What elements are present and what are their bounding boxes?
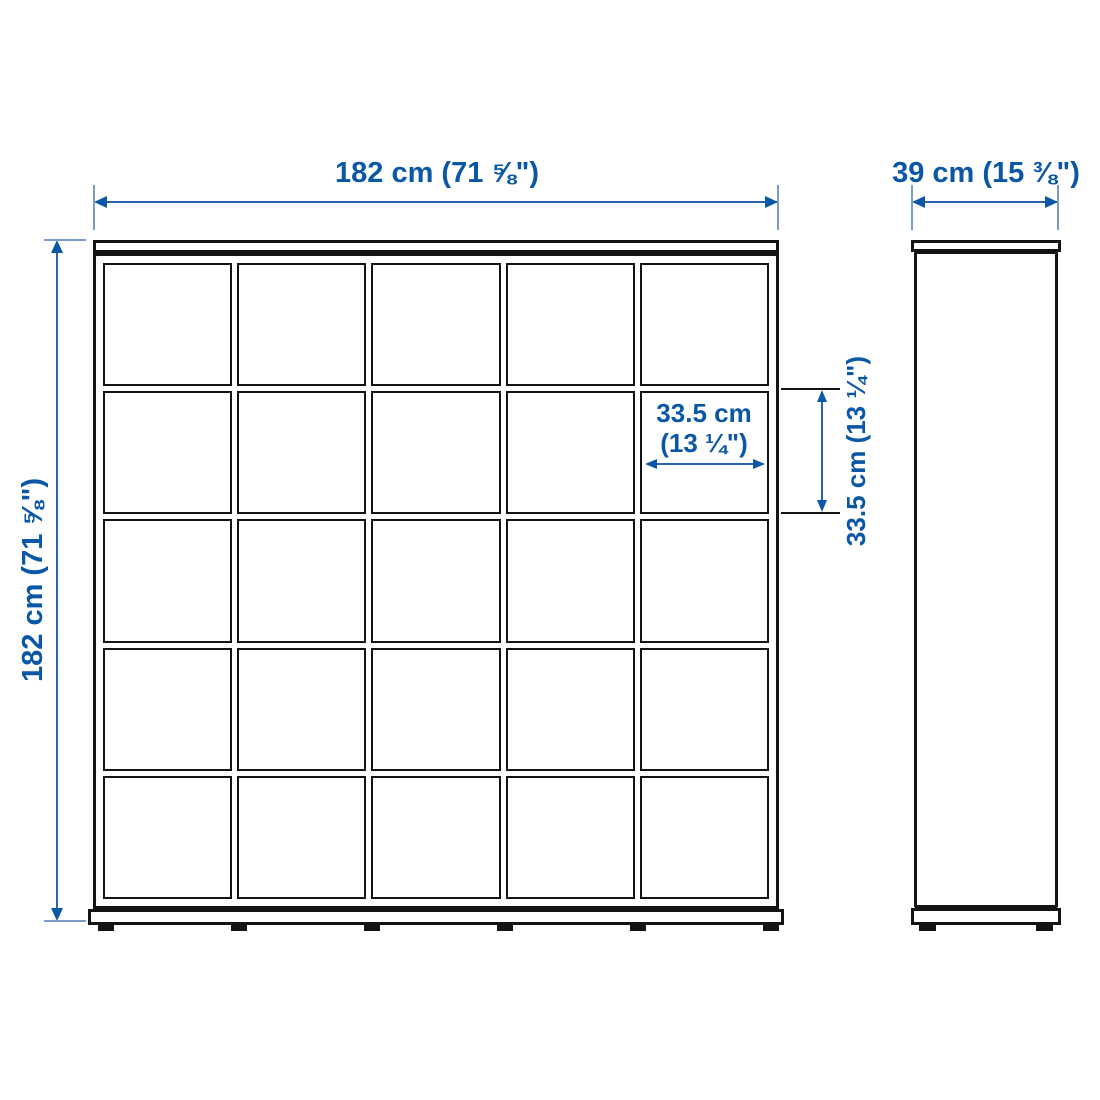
cube-cell [640, 519, 769, 642]
cube-cell [371, 648, 500, 771]
extension-tick [777, 185, 779, 230]
cube-cell [640, 648, 769, 771]
cell-height-label: 33.5 cm (13 ¼") [841, 251, 871, 651]
cube-cell [237, 391, 366, 514]
arrowhead-up-icon [817, 390, 827, 402]
front-top-panel [93, 240, 779, 253]
cube-cell [506, 391, 635, 514]
front-bottom-plinth [88, 909, 784, 925]
cube-cell [103, 648, 232, 771]
arrowhead-down-icon [817, 500, 827, 512]
extension-tick [44, 239, 86, 241]
front-foot [763, 925, 779, 931]
extension-tick [44, 920, 86, 922]
cell-height-dimension-line [821, 393, 823, 509]
cell-width-inches: (13 ¼") [640, 428, 768, 458]
cube-cell [103, 263, 232, 386]
overall-height-label: 182 cm (71 ⅝") [18, 380, 48, 780]
extension-tick [911, 185, 913, 230]
cube-cell [371, 263, 500, 386]
cube-cell [640, 776, 769, 899]
cube-cell [506, 776, 635, 899]
side-foot [919, 925, 936, 931]
depth-label: 39 cm (15 ⅜") [836, 158, 1100, 188]
arrowhead-left-icon [912, 196, 925, 208]
extension-tick [93, 185, 95, 230]
front-cube-grid [93, 253, 779, 909]
shelf-extension-line [781, 512, 840, 514]
front-foot [98, 925, 114, 931]
cell-width-value: 33.5 cm [640, 398, 768, 428]
side-panel-body [914, 251, 1058, 908]
depth-dimension-line [914, 201, 1058, 203]
cube-cell [237, 648, 366, 771]
front-foot [231, 925, 247, 931]
overall-width-label: 182 cm (71 ⅝") [237, 158, 637, 188]
cube-cell [237, 263, 366, 386]
cube-cell [506, 519, 635, 642]
cell-width-dimension-line [652, 463, 758, 465]
overall-height-dimension-line [56, 242, 58, 919]
cube-cell [103, 519, 232, 642]
side-foot [1036, 925, 1053, 931]
cube-cell [506, 263, 635, 386]
cube-cell [640, 263, 769, 386]
front-foot [364, 925, 380, 931]
extension-tick [1057, 185, 1059, 230]
cube-cell [371, 519, 500, 642]
cube-cell [371, 776, 500, 899]
front-foot [630, 925, 646, 931]
cell-width-label: 33.5 cm (13 ¼") [640, 398, 768, 458]
arrowhead-left-icon [94, 196, 107, 208]
cube-cell [237, 519, 366, 642]
dimension-diagram: 182 cm (71 ⅝") 182 cm (71 ⅝") 33.5 cm (1… [0, 0, 1100, 1100]
cube-cell [237, 776, 366, 899]
arrowhead-left-icon [645, 459, 657, 469]
cube-cell [371, 391, 500, 514]
overall-width-dimension-line [96, 201, 777, 203]
front-foot [497, 925, 513, 931]
cube-cell [103, 776, 232, 899]
arrowhead-up-icon [51, 240, 63, 253]
cube-cell [103, 391, 232, 514]
arrowhead-right-icon [753, 459, 765, 469]
cube-cell [506, 648, 635, 771]
side-bottom-plinth [911, 908, 1061, 925]
shelf-extension-line [781, 388, 840, 390]
